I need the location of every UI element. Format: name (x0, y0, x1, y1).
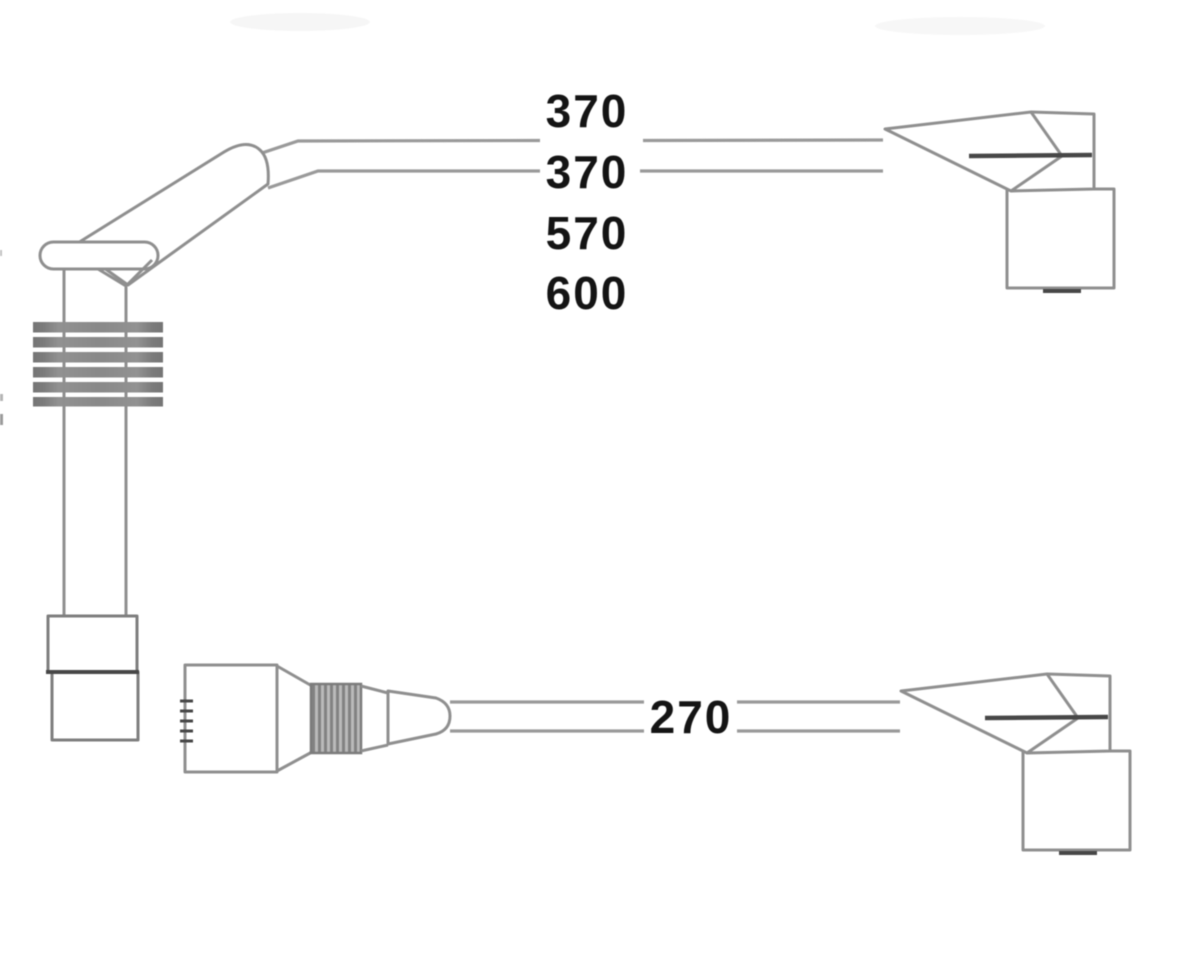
plug-end-fitting (46, 616, 139, 740)
diagram-canvas: 370 370 570 600 270 (0, 0, 1200, 960)
spark-plug-boot (40, 144, 268, 286)
cable-length-label-2: 370 (537, 149, 637, 195)
ribbed-sleeve (311, 684, 361, 753)
plug-shaft-tube (64, 270, 126, 616)
coil-end-connector (180, 665, 450, 772)
distributor-elbow-connector-bottom (901, 674, 1130, 853)
distributor-elbow-connector-top (885, 112, 1114, 291)
cable-length-label-3: 570 (537, 210, 637, 256)
corrugated-ribs (33, 322, 163, 407)
cable-length-label-4: 600 (537, 270, 637, 316)
cable-length-label-1: 370 (537, 88, 637, 134)
cable-set-line-drawing (0, 0, 1200, 960)
cable-length-label-bottom: 270 (641, 694, 741, 740)
